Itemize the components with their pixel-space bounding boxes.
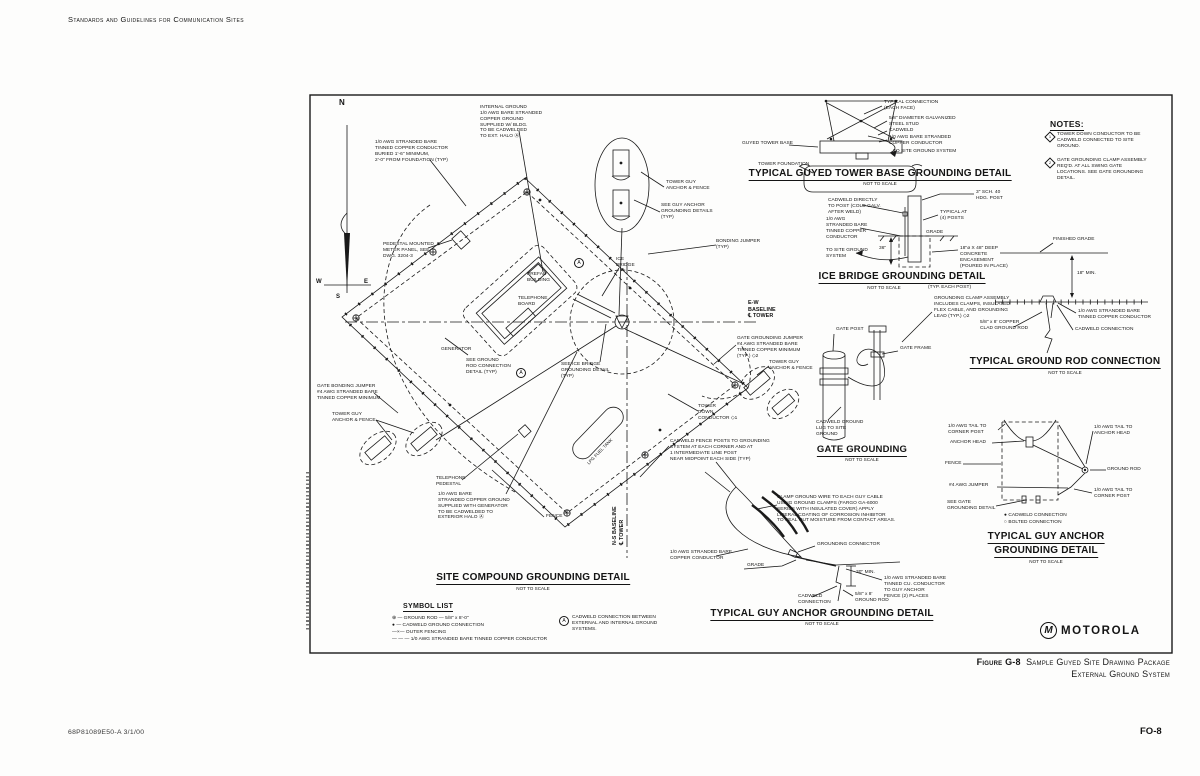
- sp-bonding-jumper-label: BONDING JUMPER (TYP): [716, 239, 760, 251]
- site-plan-ground-ring: [353, 189, 738, 516]
- tb-to-site-label: TO SITE GROUND SYSTEM: [893, 149, 956, 155]
- figure-caption-line1: Sample Guyed Site Drawing Package: [1026, 657, 1170, 667]
- ice-bridge-detail-scale: NOT TO SCALE: [867, 285, 900, 290]
- site-plan-scale: NOT TO SCALE: [516, 586, 549, 591]
- gr-conductor-label: 1/0 AWG STRANDED BARE TINNED COPPER COND…: [1078, 309, 1151, 321]
- tb-base-label: GUYED TOWER BASE: [742, 141, 793, 147]
- sp-gate-bonding-jumper-label: GATE BONDING JUMPER #4 AWG STRANDED BARE…: [317, 384, 380, 402]
- page-number: FO-8: [1140, 726, 1162, 737]
- ib-post-label: 3" SCH. 40 HDG. POST: [976, 190, 1003, 202]
- sp-cadweld-fence-posts-label: CADWELD FENCE POSTS TO GROUNDING SYSTEM …: [670, 439, 770, 462]
- ba-min-burial-label: 30" MIN.: [856, 570, 875, 576]
- compass-east-label: E: [364, 279, 368, 285]
- figure-caption-label: Figure G-8: [977, 657, 1021, 667]
- ice-bridge-detail-title: ICE BRIDGE GROUNDING DETAIL: [819, 271, 986, 284]
- margin-fine-print: [306, 472, 309, 630]
- sp-buried-conductor-label: 1/0 AWG STRANDED BARE TINNED COPPER COND…: [375, 140, 448, 163]
- tb-stud-label: 5/8" DIAMETER GALVANIZED STEEL STUD: [889, 116, 956, 128]
- sp-generator-label: GENERATOR: [441, 347, 471, 353]
- tb-typical-connection-label: TYPICAL CONNECTION (EACH FACE): [884, 100, 938, 112]
- ib-conductor-label: 1/0 AWG STRANDED BARE TINNED COPPER COND…: [826, 217, 867, 240]
- compass-north-label: N: [339, 98, 345, 107]
- gate-frame-label: GATE FRAME: [900, 346, 931, 352]
- page-header: Standards and Guidelines for Communicati…: [68, 15, 244, 24]
- ra-tail-corner-bottom-label: 1/0 AWG TAIL TO CORNER POST: [1094, 488, 1132, 500]
- ba-rod-label: 5/8" x 8' GROUND ROD: [855, 592, 889, 604]
- ra-fence-label: FENCE: [945, 461, 962, 467]
- ground-rod-detail-scale: NOT TO SCALE: [1048, 370, 1081, 375]
- drawing-frame: [310, 95, 1172, 653]
- sp-telephone-board-label: TELEPHONE BOARD: [518, 296, 548, 308]
- ba-cadweld-label: CADWELD CONNECTION: [798, 594, 831, 606]
- tower-base-detail-title: TYPICAL GUYED TOWER BASE GROUNDING DETAI…: [749, 168, 1012, 181]
- ra-anchor-head-label: ANCHOR HEAD: [950, 440, 986, 446]
- symbol-list-note-a-marker: A: [559, 616, 569, 626]
- motorola-brand-text: MOTOROLA: [1061, 625, 1141, 637]
- ra-legend-bolted: ○ BOLTED CONNECTION: [1004, 520, 1062, 526]
- ba-connector-label: GROUNDING CONNECTOR: [817, 542, 880, 548]
- tower-base-detail-scale: NOT TO SCALE: [863, 181, 896, 186]
- gr-rod-label: 5/8" x 8' COPPER CLAD GROUND ROD: [980, 320, 1028, 332]
- document-number: 68P81089E50-A 3/1/00: [68, 729, 144, 736]
- ib-to-site-label: TO SITE GROUND SYSTEM: [826, 248, 868, 260]
- guy-anchor-bottom-title: TYPICAL GUY ANCHOR GROUNDING DETAIL: [710, 608, 933, 621]
- meter-pedestal-symbol: [452, 231, 470, 249]
- symbol-list-item: — — — 1/0 AWG STRANDED BARE TINNED COPPE…: [392, 637, 547, 643]
- guy-anchor-right-scale: NOT TO SCALE: [1029, 559, 1062, 564]
- guy-anchor-cluster-top: [595, 138, 649, 232]
- gr-min-depth-label: 18" MIN.: [1077, 271, 1096, 277]
- note-2-text: GATE GROUNDING CLAMP ASSEMBLY REQ'D. AT …: [1057, 158, 1147, 181]
- ra-tail-anchor-head-label: 1/0 AWG TAIL TO ANCHOR HEAD: [1094, 425, 1132, 437]
- sp-generator-ground-label: 1/0 AWG BARE STRANDED COPPER GROUND SUPP…: [438, 492, 510, 521]
- gate-detail-scale: NOT TO SCALE: [845, 457, 878, 462]
- figure-caption: Figure G-8 Sample Guyed Site Drawing Pac…: [977, 656, 1170, 680]
- sp-guy-anchor-top-label: TOWER GUY ANCHOR & FENCE: [666, 180, 710, 192]
- note-1-text: TOWER DOWN CONDUCTOR TO BE CADWELD CONNE…: [1057, 132, 1141, 150]
- site-plan-fence: [342, 178, 750, 527]
- sp-pedestal-meter-label: PEDESTAL MOUNTED METER PANEL, SEE DWG. 3…: [383, 242, 434, 260]
- guy-anchor-right-title-1: TYPICAL GUY ANCHOR: [988, 531, 1105, 544]
- ground-rod-detail-title: TYPICAL GROUND ROD CONNECTION: [970, 356, 1161, 369]
- sp-fence-label: FENCE: [546, 514, 563, 520]
- ra-jumper-label: #4 AWG JUMPER: [949, 483, 988, 489]
- guy-anchor-bottom-scale: NOT TO SCALE: [805, 621, 838, 626]
- ba-clamp-note: CLAMP GROUND WIRE TO EACH GUY CABLE USIN…: [777, 495, 895, 524]
- ba-conductor-label: 1/0 AWG STRANDED BARE COPPER CONDUCTOR: [670, 550, 732, 562]
- ra-ground-rod-label: GROUND ROD: [1107, 467, 1141, 473]
- sp-internal-ground-label: INTERNAL GROUND 1/0 AWG BARE STRANDED CO…: [480, 105, 542, 140]
- page: Standards and Guidelines for Communicati…: [0, 0, 1200, 776]
- telephone-pedestal-symbol: [518, 425, 531, 438]
- ib-typical-label: TYPICAL AT (4) POSTS: [940, 210, 967, 222]
- guy-anchor-bottom-detail: [705, 462, 900, 601]
- sp-see-ice-bridge-label: SEE ICE BRIDGE GROUNDING DETAIL (TYP): [561, 362, 609, 380]
- guy-anchor-cluster-left: [354, 416, 449, 472]
- site-plan-title: SITE COMPOUND GROUNDING DETAIL: [436, 572, 630, 585]
- sp-telephone-pedestal-label: TELEPHONE PEDESTAL: [436, 476, 466, 488]
- sp-prefab-building-label: PREFAB BUILDING: [527, 272, 550, 284]
- sp-marker-a-2: A: [516, 368, 526, 378]
- sp-tower-down-conductor-label: TOWER DOWN CONDUCTOR ◇1: [698, 404, 737, 422]
- compass-south-label: S: [336, 294, 340, 300]
- north-arrow-icon: [324, 125, 371, 293]
- ra-tail-corner-top-label: 1/0 AWG TAIL TO CORNER POST: [948, 424, 986, 436]
- ground-rod-detail: [995, 243, 1148, 353]
- gr-finished-grade-label: FINISHED GRADE: [1053, 237, 1094, 243]
- gate-lug-label: CADWELD GROUND LUG TO SITE GROUND: [816, 420, 863, 438]
- ib-grade-label: GRADE: [926, 230, 943, 236]
- sp-see-guy-anchor-label: SEE GUY ANCHOR GROUNDING DETAILS (TYP): [661, 203, 713, 221]
- sp-gate-grounding-jumper-label: GATE GROUNDING JUMPER #4 AWG STRANDED BA…: [737, 336, 803, 359]
- guy-anchor-right-title-2: GROUNDING DETAIL: [994, 545, 1098, 558]
- sp-guy-anchor-left-label: TOWER GUY ANCHOR & FENCE: [332, 412, 376, 424]
- tb-conductor-label: 1/0 AWG BARE STRANDED COPPER CONDUCTOR: [889, 135, 951, 147]
- sp-marker-a-1: A: [574, 258, 584, 268]
- ba-grade-label: GRADE: [747, 563, 764, 569]
- figure-caption-line2: External Ground System: [977, 668, 1170, 680]
- sp-ice-bridge-label: ICE BRIDGE: [616, 257, 635, 269]
- gate-detail-title: GATE GROUNDING: [817, 444, 907, 457]
- ib-depth-label: 36": [879, 246, 886, 252]
- symbol-list-item: —×— OUTER FENCING: [392, 630, 446, 636]
- ra-see-gate-label: SEE GATE GROUNDING DETAIL: [947, 500, 995, 512]
- gr-cadweld-label: CADWELD CONNECTION: [1075, 327, 1133, 333]
- gate-clamp-assembly-label: GROUNDING CLAMP ASSEMBLY INCLUDES CLAMPS…: [934, 296, 1010, 319]
- sp-see-ground-rod-label: SEE GROUND ROD CONNECTION DETAIL (TYP): [466, 358, 511, 376]
- symbol-list-title: SYMBOL LIST: [403, 603, 453, 612]
- sp-ew-baseline-label: E-W BASELINE ℄ TOWER: [748, 300, 776, 320]
- ib-encasement-label: 18"ø X 48" DEEP CONCRETE ENCASEMENT (POU…: [960, 246, 1008, 269]
- symbol-list-note-a: CADWELD CONNECTION BETWEEN EXTERNAL AND …: [572, 615, 657, 633]
- compass-west-label: W: [316, 279, 322, 285]
- ib-cadweld-label: CADWELD DIRECTLY TO POST (COLD GALV. AFT…: [828, 198, 881, 216]
- motorola-logo: M MOTOROLA: [1040, 622, 1141, 639]
- ice-bridge-symbol: [573, 294, 615, 318]
- sp-guy-anchor-right-label: TOWER GUY ANCHOR & FENCE: [769, 360, 813, 372]
- sp-ns-baseline-label: N-S BASELINE ℄ TOWER: [612, 506, 625, 545]
- ib-typ-each-post-label: (TYP. EACH POST): [928, 285, 971, 291]
- motorola-monogram-icon: M: [1040, 622, 1057, 639]
- symbol-list-item: ⊕ — GROUND ROD — 5/8" x 8'-0": [392, 616, 469, 622]
- tb-foundation-label: TOWER FOUNDATION: [758, 162, 809, 168]
- tb-cadweld-label: CADWELD: [889, 128, 913, 134]
- symbol-list-item: ● — CADWELD GROUND CONNECTION: [392, 623, 484, 629]
- ba-tinned-label: 1/0 AWG STRANDED BARE TINNED CU. CONDUCT…: [884, 576, 946, 599]
- ra-legend-cadweld: ● CADWELD CONNECTION: [1004, 513, 1067, 519]
- notes-title: NOTES:: [1050, 119, 1084, 131]
- gate-post-label: GATE POST: [836, 327, 864, 333]
